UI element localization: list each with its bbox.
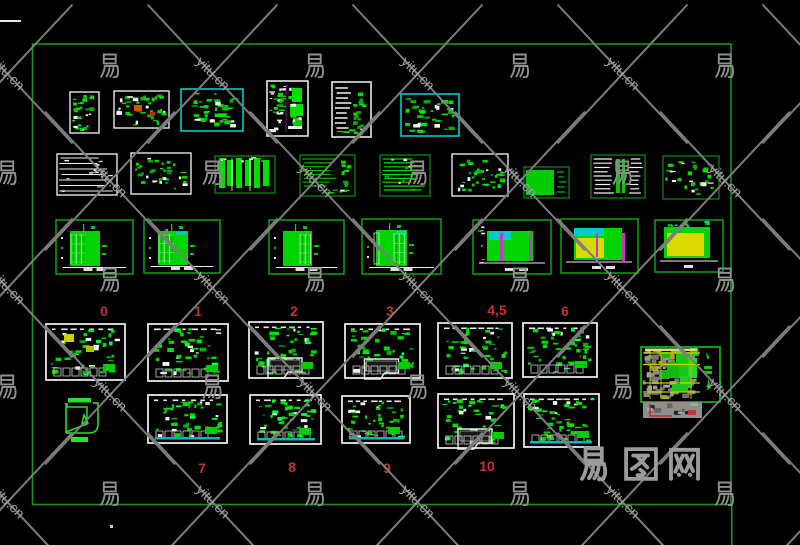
svg-text:6: 6 (561, 303, 569, 319)
svg-text:8: 8 (288, 459, 296, 475)
svg-text:4,5: 4,5 (487, 302, 507, 318)
svg-text:10: 10 (479, 458, 495, 474)
svg-text:2: 2 (290, 303, 298, 319)
svg-text:0: 0 (100, 303, 108, 319)
svg-text:7: 7 (198, 460, 206, 476)
